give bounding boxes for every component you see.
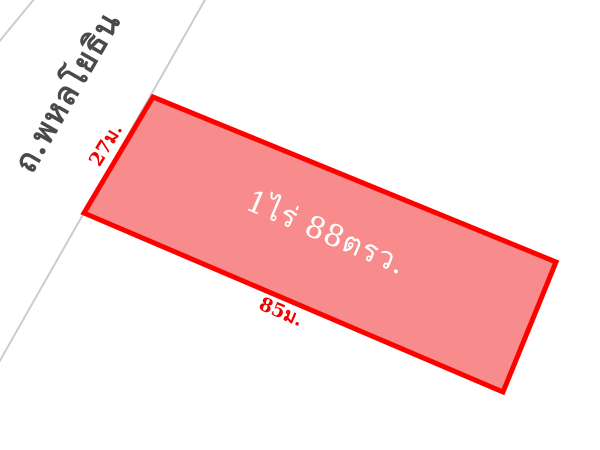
land-plot-diagram: ถ.พหลโยธิน 27ม. 85ม. 1ไร่ 88ตรว.: [0, 0, 600, 450]
road-edge-line-left: [0, 0, 35, 43]
diagram-canvas: ถ.พหลโยธิน 27ม. 85ม. 1ไร่ 88ตรว.: [0, 0, 600, 450]
